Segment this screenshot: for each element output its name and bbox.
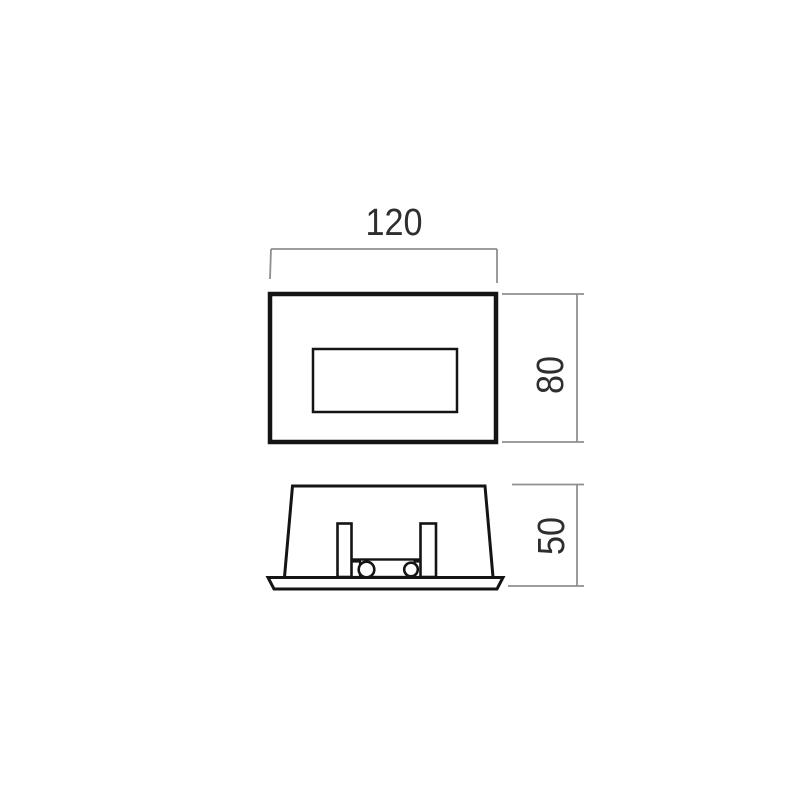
mounting-flange [268, 578, 503, 590]
spring-clip-right [421, 524, 437, 578]
front-view [270, 294, 496, 442]
diagram-canvas: 120 80 50 [0, 0, 800, 810]
screw-head-left [359, 562, 375, 578]
dimension-width [270, 249, 497, 283]
dim-height-label: 80 [532, 356, 570, 394]
technical-drawing [0, 0, 800, 810]
dim-depth-label: 50 [533, 517, 571, 555]
dim-width-label: 120 [365, 204, 422, 242]
screw-head-right [404, 563, 418, 577]
front-light-window [313, 349, 457, 412]
side-view [268, 486, 503, 589]
dim-width-tick-left [270, 249, 271, 279]
spring-clip-left [338, 524, 352, 578]
